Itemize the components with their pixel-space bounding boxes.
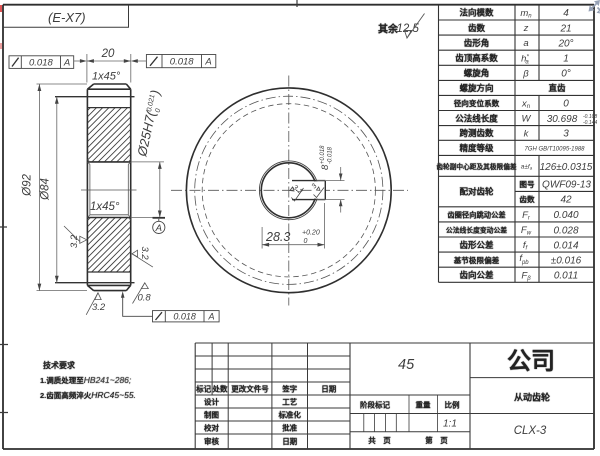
svg-text:页: 页 — [440, 436, 448, 445]
svg-text:0.018: 0.018 — [170, 57, 194, 68]
svg-text:制图: 制图 — [204, 410, 219, 420]
svg-text:0.011: 0.011 — [554, 271, 578, 282]
svg-text:(E-X7): (E-X7) — [48, 10, 86, 25]
svg-text:45: 45 — [398, 357, 415, 373]
svg-text:A: A — [63, 58, 70, 69]
svg-text:3: 3 — [563, 129, 569, 140]
svg-text:0: 0 — [563, 99, 569, 110]
svg-text:0.8: 0.8 — [138, 293, 152, 304]
svg-text:阶段标记: 阶段标记 — [360, 400, 390, 410]
svg-text:螺旋角: 螺旋角 — [464, 68, 490, 78]
svg-text:±0.016: ±0.016 — [551, 256, 582, 267]
svg-text:1:1: 1:1 — [443, 419, 457, 430]
svg-text:公法线长度: 公法线长度 — [455, 113, 498, 123]
svg-text:齿向公差: 齿向公差 — [459, 270, 494, 280]
svg-text:21: 21 — [559, 23, 571, 34]
svg-text:+0.20: +0.20 — [302, 230, 320, 237]
svg-text:A: A — [204, 57, 211, 68]
svg-text:Fr: Fr — [522, 210, 531, 222]
svg-text:螺旋方向: 螺旋方向 — [459, 83, 493, 93]
svg-text:20: 20 — [101, 48, 115, 60]
svg-text:0.018: 0.018 — [29, 58, 53, 69]
svg-text:公法线长度变动公差: 公法线长度变动公差 — [446, 226, 507, 235]
svg-text:Fβ: Fβ — [521, 270, 531, 282]
svg-text:z: z — [523, 23, 529, 34]
svg-text:h*a: h*a — [521, 53, 529, 65]
svg-text:-0.018: -0.018 — [328, 146, 334, 164]
svg-text:精度等级: 精度等级 — [459, 143, 494, 153]
svg-text:齿数: 齿数 — [468, 23, 486, 33]
svg-text:跨测齿数: 跨测齿数 — [459, 128, 494, 138]
svg-text:0: 0 — [304, 238, 308, 245]
svg-text:签字: 签字 — [281, 384, 297, 394]
svg-text:法向模数: 法向模数 — [459, 8, 494, 18]
svg-text:批准: 批准 — [282, 423, 297, 433]
svg-text:2.齿面高频淬火HRC45~55.: 2.齿面高频淬火HRC45~55. — [40, 390, 136, 400]
svg-text:公司: 公司 — [507, 348, 555, 375]
svg-text:A: A — [207, 311, 214, 321]
svg-text:配对齿轮: 配对齿轮 — [459, 187, 494, 197]
svg-text:日期: 日期 — [282, 436, 297, 446]
svg-text:0: 0 — [155, 108, 163, 113]
svg-text:a±fa: a±fa — [521, 164, 533, 171]
svg-text:xn: xn — [521, 99, 531, 111]
svg-text:a: a — [523, 38, 528, 49]
svg-text:42: 42 — [560, 195, 572, 206]
svg-text:30.698: 30.698 — [547, 114, 578, 125]
svg-text:-0.144: -0.144 — [583, 120, 597, 126]
svg-text:0°: 0° — [561, 69, 571, 80]
svg-text:齿顶高系数: 齿顶高系数 — [455, 53, 498, 63]
svg-text:Ø84: Ø84 — [40, 178, 52, 201]
svg-text:fpb: fpb — [519, 253, 529, 266]
svg-text:日期: 日期 — [321, 384, 336, 394]
svg-text:mn: mn — [520, 8, 532, 19]
svg-text:126±0.0315: 126±0.0315 — [540, 162, 593, 173]
svg-text:校对: 校对 — [204, 423, 219, 433]
svg-text:β: β — [522, 68, 529, 79]
svg-text:重量: 重量 — [416, 400, 431, 410]
svg-text:齿轮副中心距及其极限偏差: 齿轮副中心距及其极限偏差 — [436, 162, 517, 171]
svg-text:标准化: 标准化 — [277, 410, 301, 420]
svg-text:技术要求: 技术要求 — [43, 360, 76, 370]
svg-text:20°: 20° — [557, 38, 573, 49]
svg-text:0.018: 0.018 — [173, 311, 196, 321]
svg-text:从动齿轮: 从动齿轮 — [514, 392, 550, 403]
svg-text:3.2: 3.2 — [92, 302, 106, 313]
svg-text:Ø92: Ø92 — [22, 174, 34, 197]
svg-text:齿形公差: 齿形公差 — [459, 240, 494, 250]
svg-text:处数: 处数 — [212, 384, 228, 394]
svg-text:审核: 审核 — [204, 436, 219, 446]
svg-text:0.014: 0.014 — [553, 240, 578, 251]
svg-text:Fw: Fw — [521, 225, 532, 237]
svg-text:3.2: 3.2 — [139, 246, 150, 260]
svg-text:k: k — [524, 129, 530, 140]
svg-text:1x45°: 1x45° — [92, 71, 121, 83]
svg-text:第: 第 — [425, 435, 433, 445]
svg-text:3.2: 3.2 — [291, 184, 303, 196]
svg-text:CLX-3: CLX-3 — [514, 425, 547, 437]
svg-text:ff: ff — [523, 240, 529, 252]
svg-text:页: 页 — [383, 436, 391, 445]
svg-text:工艺: 工艺 — [282, 397, 297, 407]
svg-text:设计: 设计 — [204, 397, 219, 407]
svg-text:更改文件号: 更改文件号 — [231, 384, 269, 394]
svg-text:W: W — [522, 114, 532, 125]
svg-text:齿形角: 齿形角 — [464, 38, 490, 48]
svg-text:+0.018: +0.018 — [320, 145, 326, 164]
svg-text:28.3: 28.3 — [265, 230, 290, 244]
svg-text:1: 1 — [563, 54, 569, 65]
svg-text:QWF09-13: QWF09-13 — [542, 179, 591, 190]
svg-text:齿数: 齿数 — [519, 194, 535, 204]
svg-text:4: 4 — [563, 8, 569, 19]
svg-text:径向变位系数: 径向变位系数 — [454, 98, 500, 108]
svg-text:1.调质处理至HB241~286;: 1.调质处理至HB241~286; — [40, 375, 132, 385]
svg-text:Ø25H7(: Ø25H7( — [134, 108, 159, 158]
svg-text:直齿: 直齿 — [548, 83, 566, 93]
svg-text:0.028: 0.028 — [553, 225, 578, 236]
svg-text:3.2: 3.2 — [69, 234, 80, 248]
svg-text:标记: 标记 — [195, 384, 211, 394]
svg-text:基节极限偏差: 基节极限偏差 — [453, 255, 500, 265]
svg-text:图号: 图号 — [519, 180, 535, 189]
svg-text:齿圈径向跳动公差: 齿圈径向跳动公差 — [447, 211, 505, 220]
svg-text:1x45°: 1x45° — [90, 201, 120, 213]
svg-text:0.040: 0.040 — [553, 210, 578, 221]
svg-text:比例: 比例 — [445, 400, 460, 410]
svg-text:7GH GB/T10095-1988: 7GH GB/T10095-1988 — [524, 147, 585, 153]
svg-text:共: 共 — [368, 435, 376, 445]
svg-text:A: A — [155, 223, 162, 234]
